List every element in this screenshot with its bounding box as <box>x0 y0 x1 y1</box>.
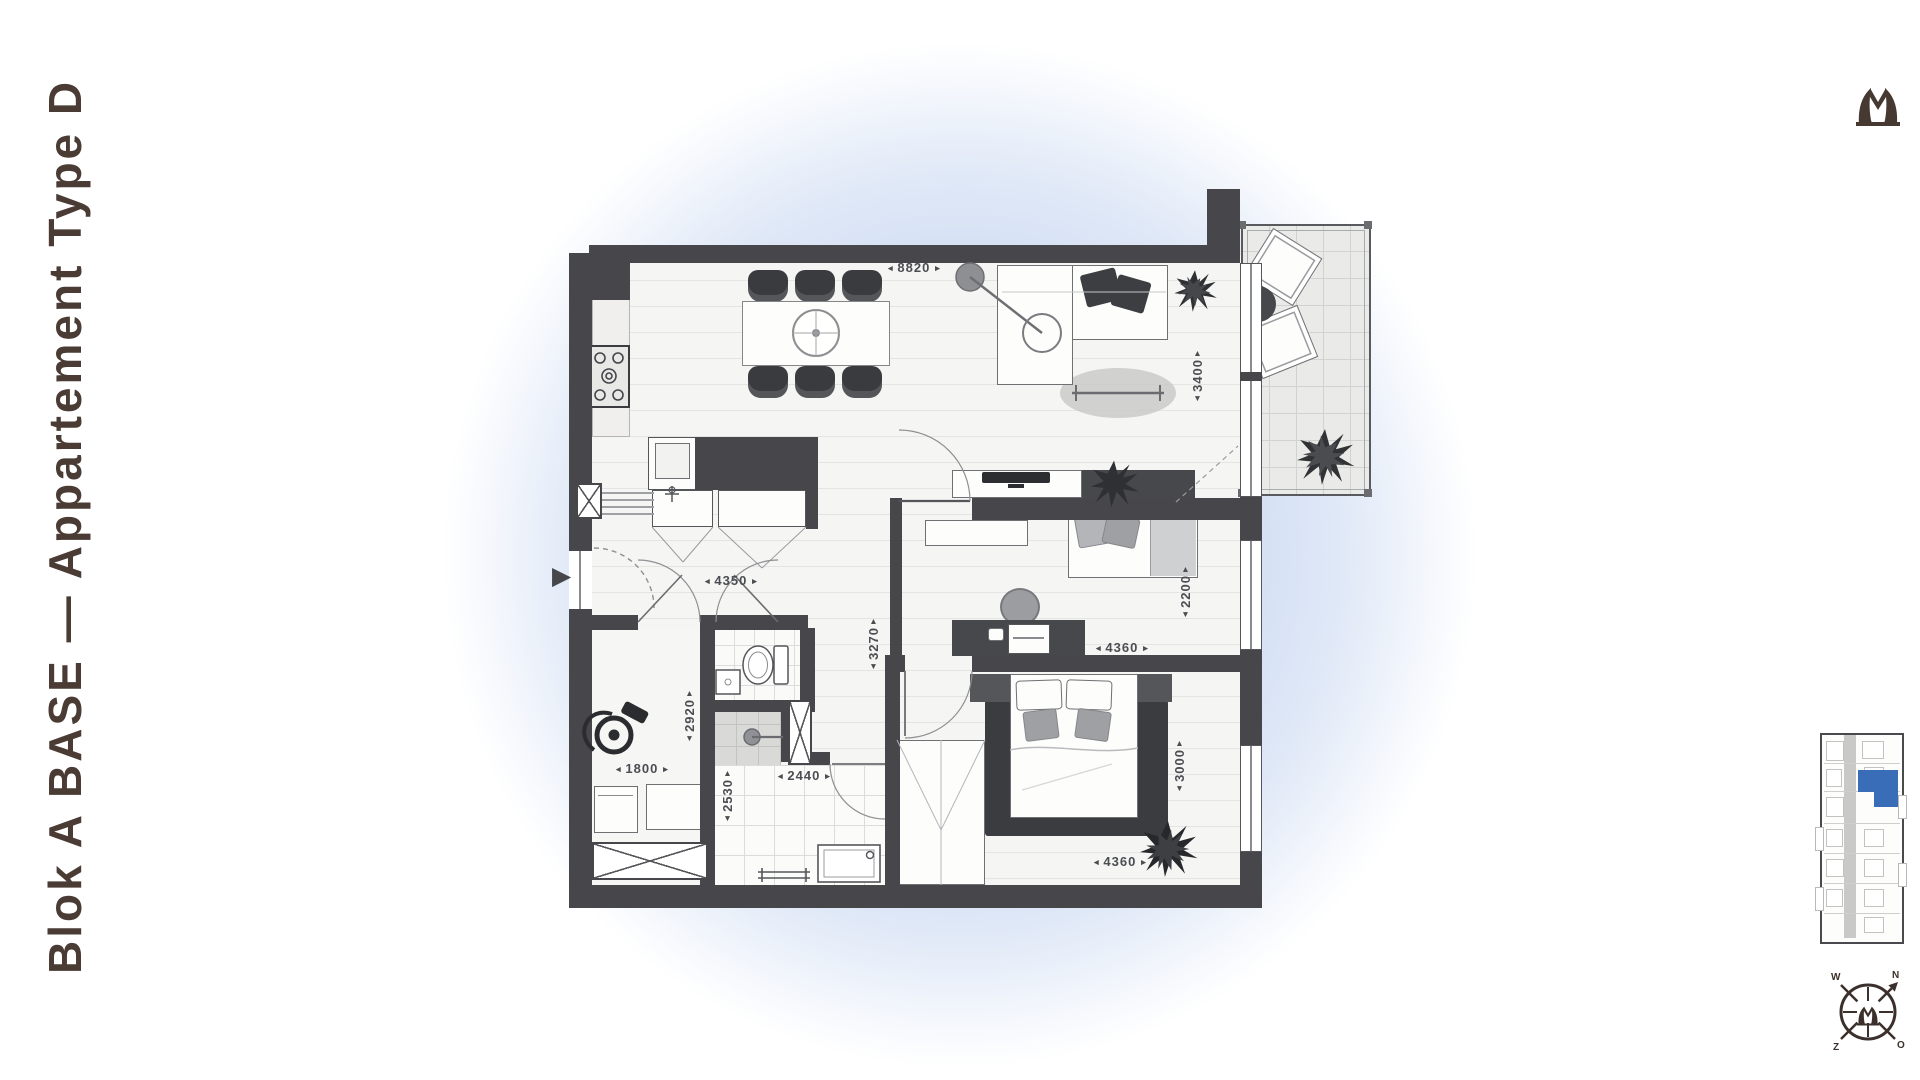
compass-south-label: Z <box>1833 1042 1839 1053</box>
dim-arrow-up-icon: ▲ <box>1175 738 1183 748</box>
bed-pillow <box>1065 679 1112 711</box>
dimension-bedroom-depth: ▲ 3000 ▼ <box>1172 738 1187 793</box>
entry-arrow-icon: ▶ <box>552 564 571 589</box>
dimension-inner-hall-depth: ▲ 3270 ▼ <box>866 616 881 671</box>
wall-bedroom-top-a <box>885 655 905 672</box>
dim-arrow-left-icon: ◄ <box>776 771 784 781</box>
dining-chair <box>795 366 835 398</box>
floorplan: ▶ ◄ 8820 ► ▲ 3400 ▼ ◄ 4350 ► ▲ 3270 ▼ ▲ … <box>552 150 1412 925</box>
doormat-grille <box>602 487 654 515</box>
dim-arrow-right-icon: ► <box>933 263 941 273</box>
dim-arrow-down-icon: ▼ <box>685 733 693 743</box>
minimap-highlight-unit <box>1874 792 1898 807</box>
wall-bedroom-top-b <box>972 655 1243 672</box>
compass-west-label: W <box>1831 972 1841 983</box>
shower-floor <box>715 712 781 768</box>
wc-floor <box>715 628 800 705</box>
bed-pillow <box>1015 679 1062 711</box>
study-window <box>1240 540 1262 650</box>
mousepad <box>988 628 1004 641</box>
window-glass-line <box>1250 746 1252 851</box>
wall-right-b <box>1240 520 1262 540</box>
dining-chair <box>842 366 882 398</box>
railing-post <box>1364 221 1372 229</box>
plant-icon <box>1137 816 1199 882</box>
dim-arrow-up-icon: ▲ <box>869 616 877 626</box>
dim-arrow-up-icon: ▲ <box>685 688 693 698</box>
front-door-frame <box>569 548 592 612</box>
dim-arrow-up-icon: ▲ <box>1193 348 1201 358</box>
compass-rose: N W Z O <box>1828 966 1908 1061</box>
dining-chair <box>795 270 835 302</box>
page: Blok A BASE — Appartement Type D <box>0 0 1920 1080</box>
minimap-unit <box>1826 797 1844 817</box>
dim-arrow-left-icon: ◄ <box>614 764 622 774</box>
dining-chair <box>842 270 882 302</box>
dim-arrow-down-icon: ▼ <box>869 661 877 671</box>
plant-icon <box>1172 268 1218 314</box>
dimension-hall-width: ◄ 4350 ► <box>703 573 759 588</box>
shaft-storage <box>592 842 708 880</box>
wall-right-corner <box>1240 497 1262 520</box>
washer-panel <box>598 790 633 796</box>
dim-arrow-up-icon: ▲ <box>1181 564 1189 574</box>
minimap-unit <box>1826 889 1843 907</box>
window-mullion <box>1240 372 1262 381</box>
dim-arrow-down-icon: ▼ <box>1181 609 1189 619</box>
dim-arrow-right-icon: ► <box>1139 857 1147 867</box>
building-minimap <box>1820 733 1904 944</box>
minimap-unit <box>1826 741 1844 761</box>
bathroom-floor <box>715 765 885 885</box>
shaft-hall <box>576 483 602 519</box>
minimap-highlight-unit <box>1858 770 1898 792</box>
dimension-living-depth: ▲ 3400 ▼ <box>1190 348 1205 403</box>
hall-closet <box>718 490 806 527</box>
minimap-unit <box>1864 859 1884 877</box>
dim-arrow-down-icon: ▼ <box>723 813 731 823</box>
washing-machine <box>594 786 638 833</box>
plant-icon <box>1088 458 1140 510</box>
railing-post <box>1364 489 1372 497</box>
minimap-unit <box>1826 829 1843 847</box>
wall-bath-bedroom <box>885 672 900 885</box>
compass-north-label: N <box>1892 970 1899 981</box>
dim-arrow-left-icon: ◄ <box>1092 857 1100 867</box>
dim-arrow-right-icon: ► <box>823 771 831 781</box>
dimension-bedroom-width: ◄ 4360 ► <box>1092 854 1148 869</box>
dimension-storage-depth: ▲ 2920 ▼ <box>682 688 697 743</box>
tv-stand <box>1008 484 1024 488</box>
wall-bottom <box>569 885 1262 908</box>
living-rug <box>1060 368 1176 418</box>
dining-chair <box>748 366 788 398</box>
sink-unit <box>648 437 697 490</box>
minimap-unit <box>1826 859 1844 877</box>
wall-column-balcony <box>1207 189 1240 263</box>
minimap-unit <box>1864 829 1884 847</box>
dimension-storage-width: ◄ 1800 ► <box>614 761 670 776</box>
wall-closet-jamb <box>806 483 818 529</box>
dimension-study-depth: ▲ 2200 ▼ <box>1178 564 1193 619</box>
dimension-study-width: ◄ 4360 ► <box>1094 640 1150 655</box>
dining-chair <box>748 270 788 302</box>
laptop-hinge <box>1013 637 1044 639</box>
wall-right-c <box>1240 650 1262 745</box>
minimap-unit <box>1864 917 1884 933</box>
bed-cushion <box>1074 708 1112 742</box>
sofa-chaise <box>997 265 1073 385</box>
hall-closet <box>652 490 713 527</box>
study-cabinet <box>925 520 1028 546</box>
wall-study-left <box>890 498 902 672</box>
kitchen-dark-counter <box>695 437 818 490</box>
pendant-lamp-center <box>812 329 820 337</box>
dim-arrow-up-icon: ▲ <box>723 768 731 778</box>
wall-hall-bottom-b <box>700 615 808 630</box>
minimap-unit <box>1862 741 1884 759</box>
nightstand <box>1134 674 1172 702</box>
tv <box>982 472 1050 483</box>
minimap-unit <box>1826 769 1842 787</box>
sink-basin <box>655 443 690 479</box>
page-title: Blok A BASE — Appartement Type D <box>38 112 92 974</box>
plant-icon <box>1294 426 1356 488</box>
minimap-corridor <box>1844 735 1856 938</box>
dimension-bathroom-depth: ▲ 2530 ▼ <box>720 768 735 823</box>
bed-cushion <box>1022 708 1059 742</box>
dimension-bathroom-width: ◄ 2440 ► <box>776 768 832 783</box>
wall-hall-bottom-a <box>569 615 638 630</box>
wall-left-lower <box>569 612 592 908</box>
dim-arrow-right-icon: ► <box>1141 643 1149 653</box>
dim-arrow-right-icon: ► <box>750 576 758 586</box>
stove <box>588 345 630 408</box>
minimap-unit <box>1864 889 1884 907</box>
laptop <box>1008 624 1050 654</box>
dryer <box>646 784 704 830</box>
dimension-kitchen-living-width: ◄ 8820 ► <box>886 260 942 275</box>
dim-arrow-right-icon: ► <box>661 764 669 774</box>
nightstand <box>970 674 1010 702</box>
tulip-logo-icon <box>1856 76 1900 131</box>
bedroom-window <box>1240 745 1262 852</box>
wardrobe <box>897 740 985 885</box>
compass-east-label: O <box>1897 1040 1905 1051</box>
front-door-leaf <box>579 551 581 609</box>
shaft-shower <box>788 700 812 765</box>
dim-arrow-left-icon: ◄ <box>703 576 711 586</box>
dim-arrow-down-icon: ▼ <box>1175 783 1183 793</box>
dim-arrow-down-icon: ▼ <box>1193 393 1201 403</box>
window-glass-line <box>1250 541 1252 649</box>
dim-arrow-left-icon: ◄ <box>886 263 894 273</box>
dim-arrow-left-icon: ◄ <box>1094 643 1102 653</box>
